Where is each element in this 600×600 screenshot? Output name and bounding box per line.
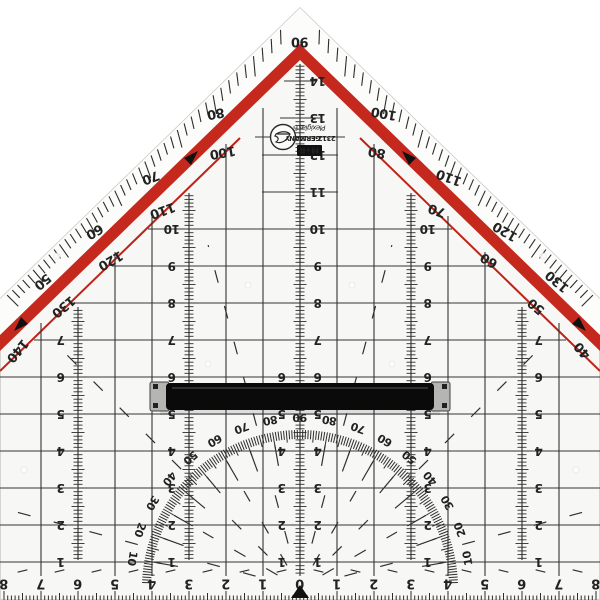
scale-number: 8	[591, 575, 600, 590]
scale-number: 90	[291, 33, 309, 48]
scale-number: 4	[147, 575, 156, 590]
scale-number: 3	[535, 481, 543, 495]
cap-notch	[442, 384, 447, 389]
scale-number: 4	[424, 444, 432, 458]
mark-line	[281, 30, 282, 45]
scale-number: 1	[258, 575, 267, 590]
scale-number: 80	[206, 104, 226, 122]
scale-number: 5	[57, 407, 65, 421]
mold-dot	[540, 253, 546, 259]
scale-number: 4	[535, 444, 543, 458]
scale-number: 5	[110, 575, 119, 590]
mark-line	[310, 430, 311, 439]
scale-number: 9	[424, 259, 432, 273]
scale-number: 3	[314, 481, 322, 495]
scale-number: 10	[310, 222, 326, 236]
scale-number: 2	[168, 518, 176, 532]
scale-number: 4	[314, 444, 322, 458]
scale-number: GERMANY	[284, 134, 321, 142]
mold-dot	[21, 467, 27, 473]
scale-number: 7	[314, 333, 322, 347]
mold-dot	[389, 361, 395, 367]
scale-number: 1	[424, 555, 432, 569]
mark-line	[271, 39, 272, 53]
scale-number: 2	[424, 518, 432, 532]
set-square-drawing: 9080706050100110120130140100110120130807…	[0, 0, 600, 600]
scale-number: 3	[406, 575, 415, 590]
scale-number: 2	[222, 575, 231, 590]
scale-number: 3	[278, 481, 286, 495]
mold-dot	[245, 282, 251, 288]
mold-dot	[573, 467, 579, 473]
cap-notch	[153, 384, 158, 389]
set-square-photo: 9080706050100110120130140100110120130807…	[0, 0, 600, 600]
mold-dot	[349, 282, 355, 288]
scale-number: 2	[278, 518, 286, 532]
scale-number: 7	[36, 575, 45, 590]
scale-number: 6	[517, 575, 526, 590]
scale-number: 6	[278, 370, 286, 384]
scale-number: 6	[535, 370, 543, 384]
scale-number: 4	[443, 575, 452, 590]
scale-number: 1	[332, 575, 341, 590]
handle	[150, 382, 450, 415]
scale-number: 6	[73, 575, 82, 590]
scale-number: 2	[314, 518, 322, 532]
scale-number: 8	[424, 296, 432, 310]
scale-number: 10	[420, 222, 436, 236]
scale-number: 3	[168, 481, 176, 495]
cap-notch	[153, 403, 158, 408]
scale-number: 4	[168, 444, 176, 458]
scale-number: 5	[535, 407, 543, 421]
mark-line	[319, 30, 320, 45]
scale-number: 8	[0, 575, 8, 590]
scale-number: 8	[314, 296, 322, 310]
scale-number: 3	[424, 481, 432, 495]
scale-number: 2	[370, 575, 379, 590]
scale-number: 1	[278, 555, 286, 569]
mark-line	[289, 430, 290, 439]
scale-number: 3	[57, 481, 65, 495]
scale-number: 3	[184, 575, 193, 590]
scale-number: 7	[424, 333, 432, 347]
scale-number: 2	[535, 518, 543, 532]
scale-number: M+R	[300, 146, 320, 155]
mold-dot	[54, 253, 60, 259]
mark-line	[328, 39, 329, 53]
scale-number: 4	[57, 444, 65, 458]
cap-notch	[442, 403, 447, 408]
scale-number: 7	[535, 333, 543, 347]
scale-number: 5	[480, 575, 489, 590]
scale-number: 4	[278, 444, 286, 458]
scale-number: 2312	[318, 134, 336, 142]
brand-country-model: GERMANY2312	[284, 134, 336, 142]
scale-number: 2	[57, 518, 65, 532]
scale-number: 80	[367, 143, 387, 161]
scale-number: 7	[168, 333, 176, 347]
scale-number: 11	[310, 185, 326, 199]
scale-number: 9	[314, 259, 322, 273]
mold-dot	[205, 361, 211, 367]
scale-number: 6	[57, 370, 65, 384]
scale-number: 6	[424, 370, 432, 384]
scale-number: 7	[554, 575, 563, 590]
scale-number: 14	[310, 74, 326, 88]
scale-number: 10	[164, 222, 180, 236]
scale-number: 1	[57, 555, 65, 569]
scale-number: 1	[168, 555, 176, 569]
scale-number: 1	[314, 555, 322, 569]
handle-bar	[166, 383, 434, 410]
scale-number: 7	[57, 333, 65, 347]
scale-number: 8	[168, 296, 176, 310]
scale-number: 1	[535, 555, 543, 569]
scale-number: 9	[168, 259, 176, 273]
scale-number: 13	[310, 111, 326, 125]
scale-number: 6	[314, 370, 322, 384]
scale-number: Plexiglas®	[292, 124, 325, 132]
scale-number: 6	[168, 370, 176, 384]
